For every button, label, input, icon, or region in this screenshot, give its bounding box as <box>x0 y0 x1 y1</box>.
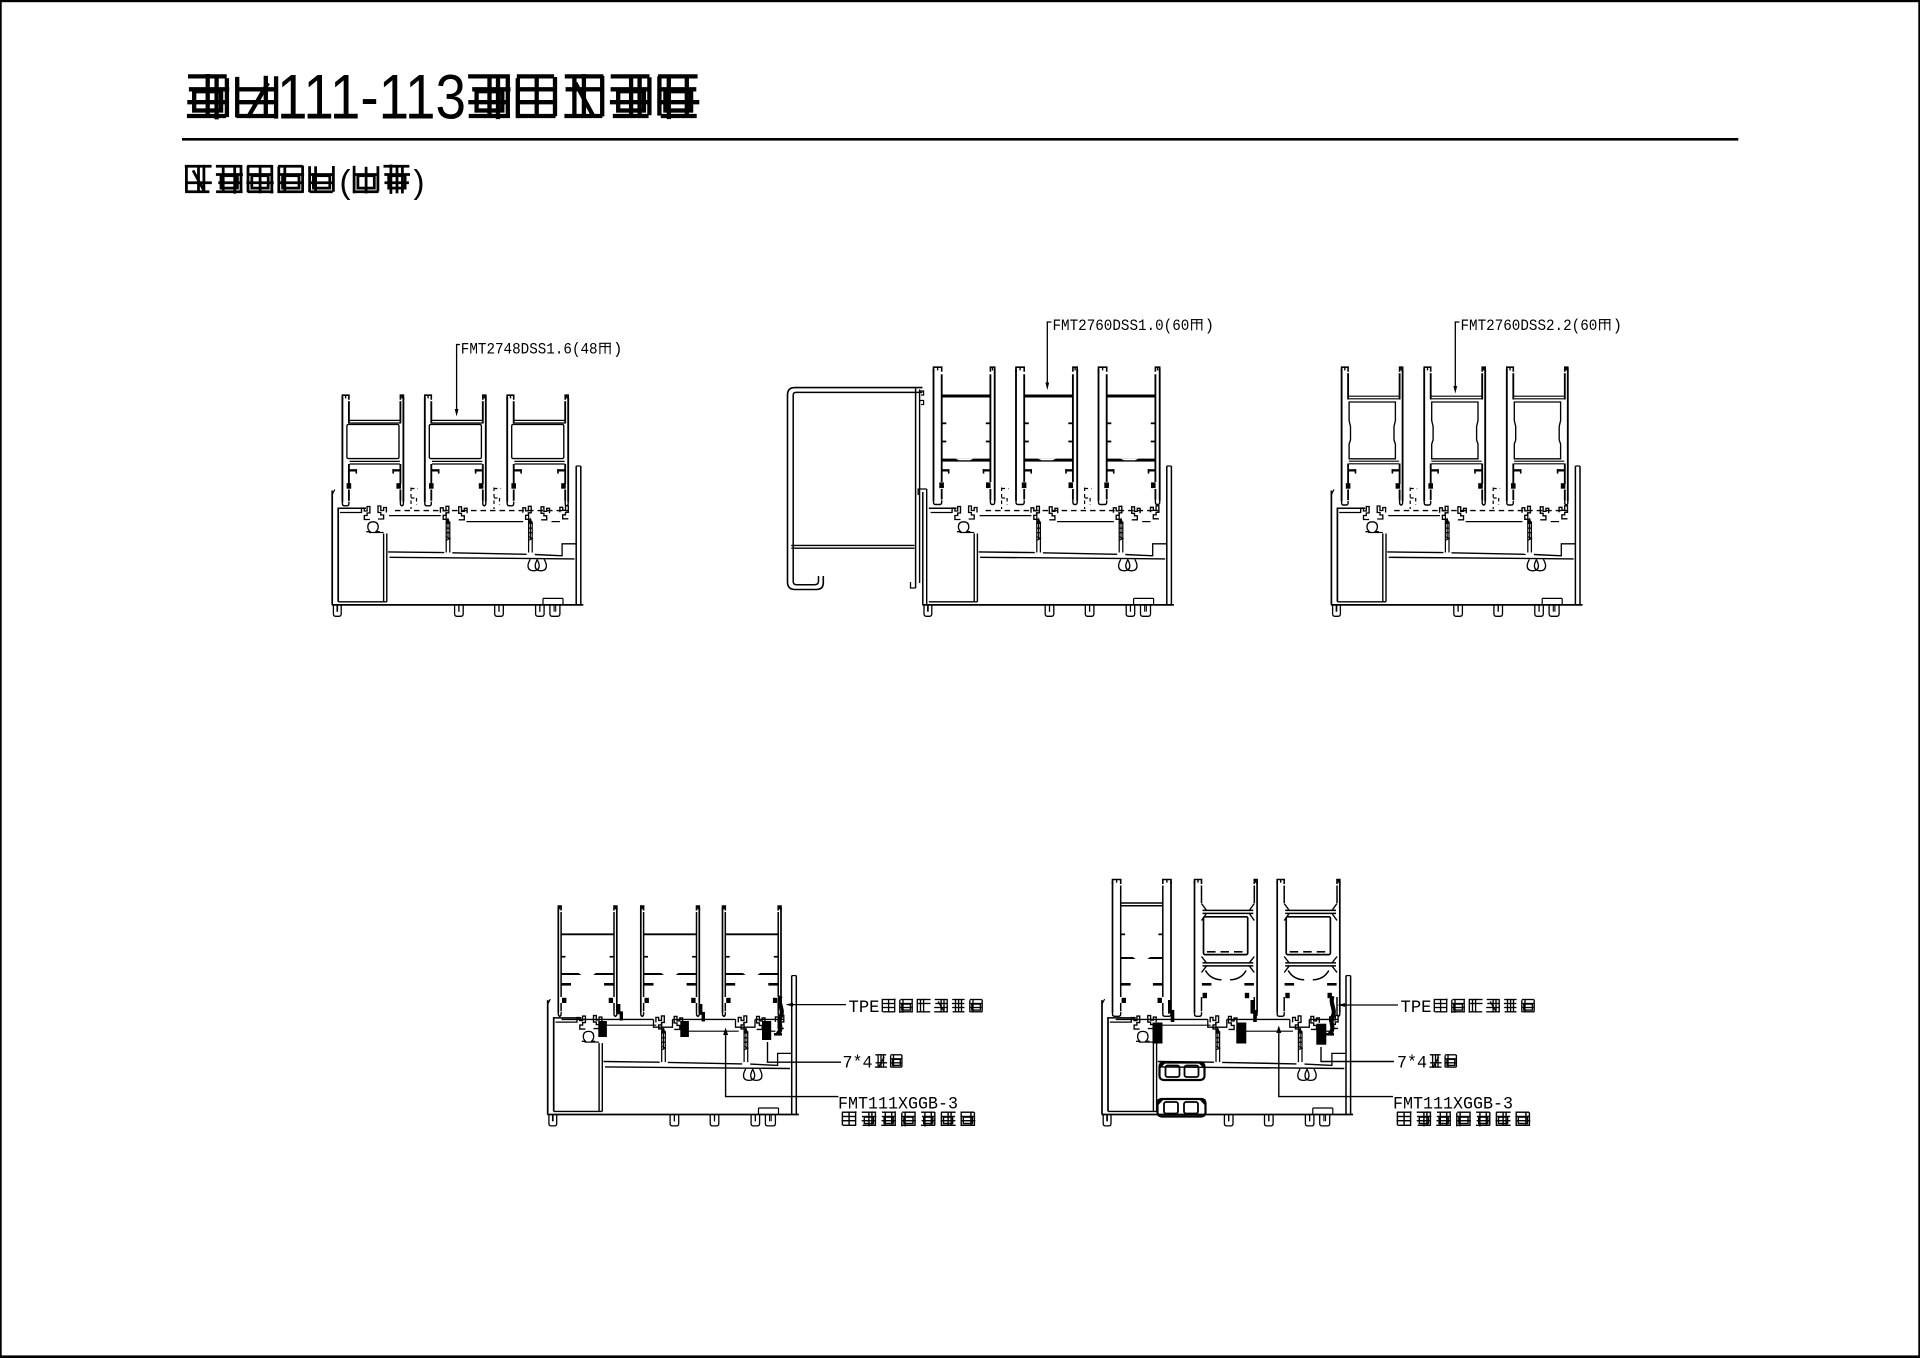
svg-text:(: ( <box>340 163 351 200</box>
svg-text:7*4: 7*4 <box>843 1054 873 1074</box>
svg-text:FMT2760DSS2.2(60: FMT2760DSS2.2(60 <box>1461 317 1598 335</box>
svg-text:111-113: 111-113 <box>277 63 466 133</box>
svg-text:TPE: TPE <box>1401 998 1432 1018</box>
svg-text:FMT2760DSS1.0(60: FMT2760DSS1.0(60 <box>1053 317 1190 335</box>
svg-text:): ) <box>414 163 425 200</box>
svg-text:TPE: TPE <box>849 998 880 1018</box>
svg-text:): ) <box>1613 317 1622 335</box>
svg-text:7*4: 7*4 <box>1397 1054 1427 1074</box>
svg-text:): ) <box>1205 317 1214 335</box>
svg-text:): ) <box>613 341 622 359</box>
svg-text:FMT2748DSS1.6(48: FMT2748DSS1.6(48 <box>461 341 598 359</box>
